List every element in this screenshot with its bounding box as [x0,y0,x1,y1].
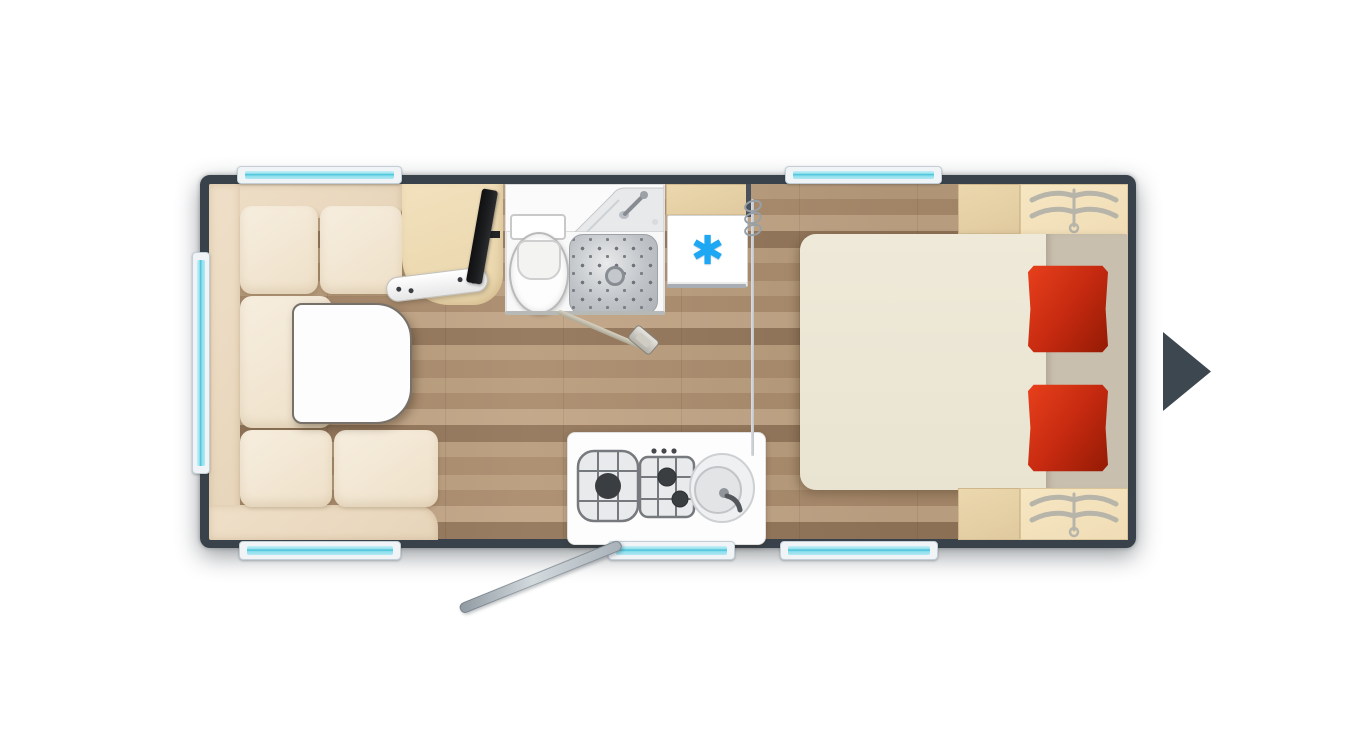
entry-door [458,539,623,614]
sofa-backrest-left [209,184,240,540]
hanger-icon [1026,186,1122,234]
overhead-cabinet [666,184,748,215]
window-bottom-lounge [239,541,401,560]
fridge: ✱ [667,215,748,287]
shower-drain-icon [605,266,625,286]
sofa-cushion [334,430,438,507]
window-top-bedroom [785,166,942,184]
wardrobe-top [1020,184,1128,236]
window-bottom-kitchen [608,541,735,560]
next-arrow-button[interactable] [1163,332,1211,411]
pillow-right [1028,383,1108,473]
window-glass [245,171,394,179]
washroom-wall [505,311,665,315]
window-glass [788,546,930,555]
hanger-icon [1026,490,1122,538]
shelf-screw-icon [396,286,402,292]
sofa-cushion [240,206,318,294]
window-glass [616,546,727,555]
bedside-cabinet-top [958,184,1020,234]
sofa-backrest-bottom [209,505,438,540]
window-side-lounge [192,252,210,474]
hob-and-sink [572,443,762,535]
floorplan-canvas: ✱ [0,0,1352,738]
privacy-curtain [751,199,754,456]
shelf-screw-icon [408,288,414,294]
window-glass [197,260,205,466]
snowflake-icon: ✱ [691,231,725,271]
pillow-left [1028,264,1108,354]
window-top-lounge [237,166,402,184]
window-glass [793,171,934,179]
bedside-cabinet-bottom [958,488,1020,540]
window-bottom-bedroom [780,541,938,560]
lounge-table [292,303,412,424]
fridge-base [667,284,746,288]
sofa-cushion [240,430,332,507]
shelf-screw-icon [457,277,463,283]
toilet-lid [517,240,561,280]
window-glass [247,546,393,555]
wardrobe-bottom [1020,488,1128,540]
